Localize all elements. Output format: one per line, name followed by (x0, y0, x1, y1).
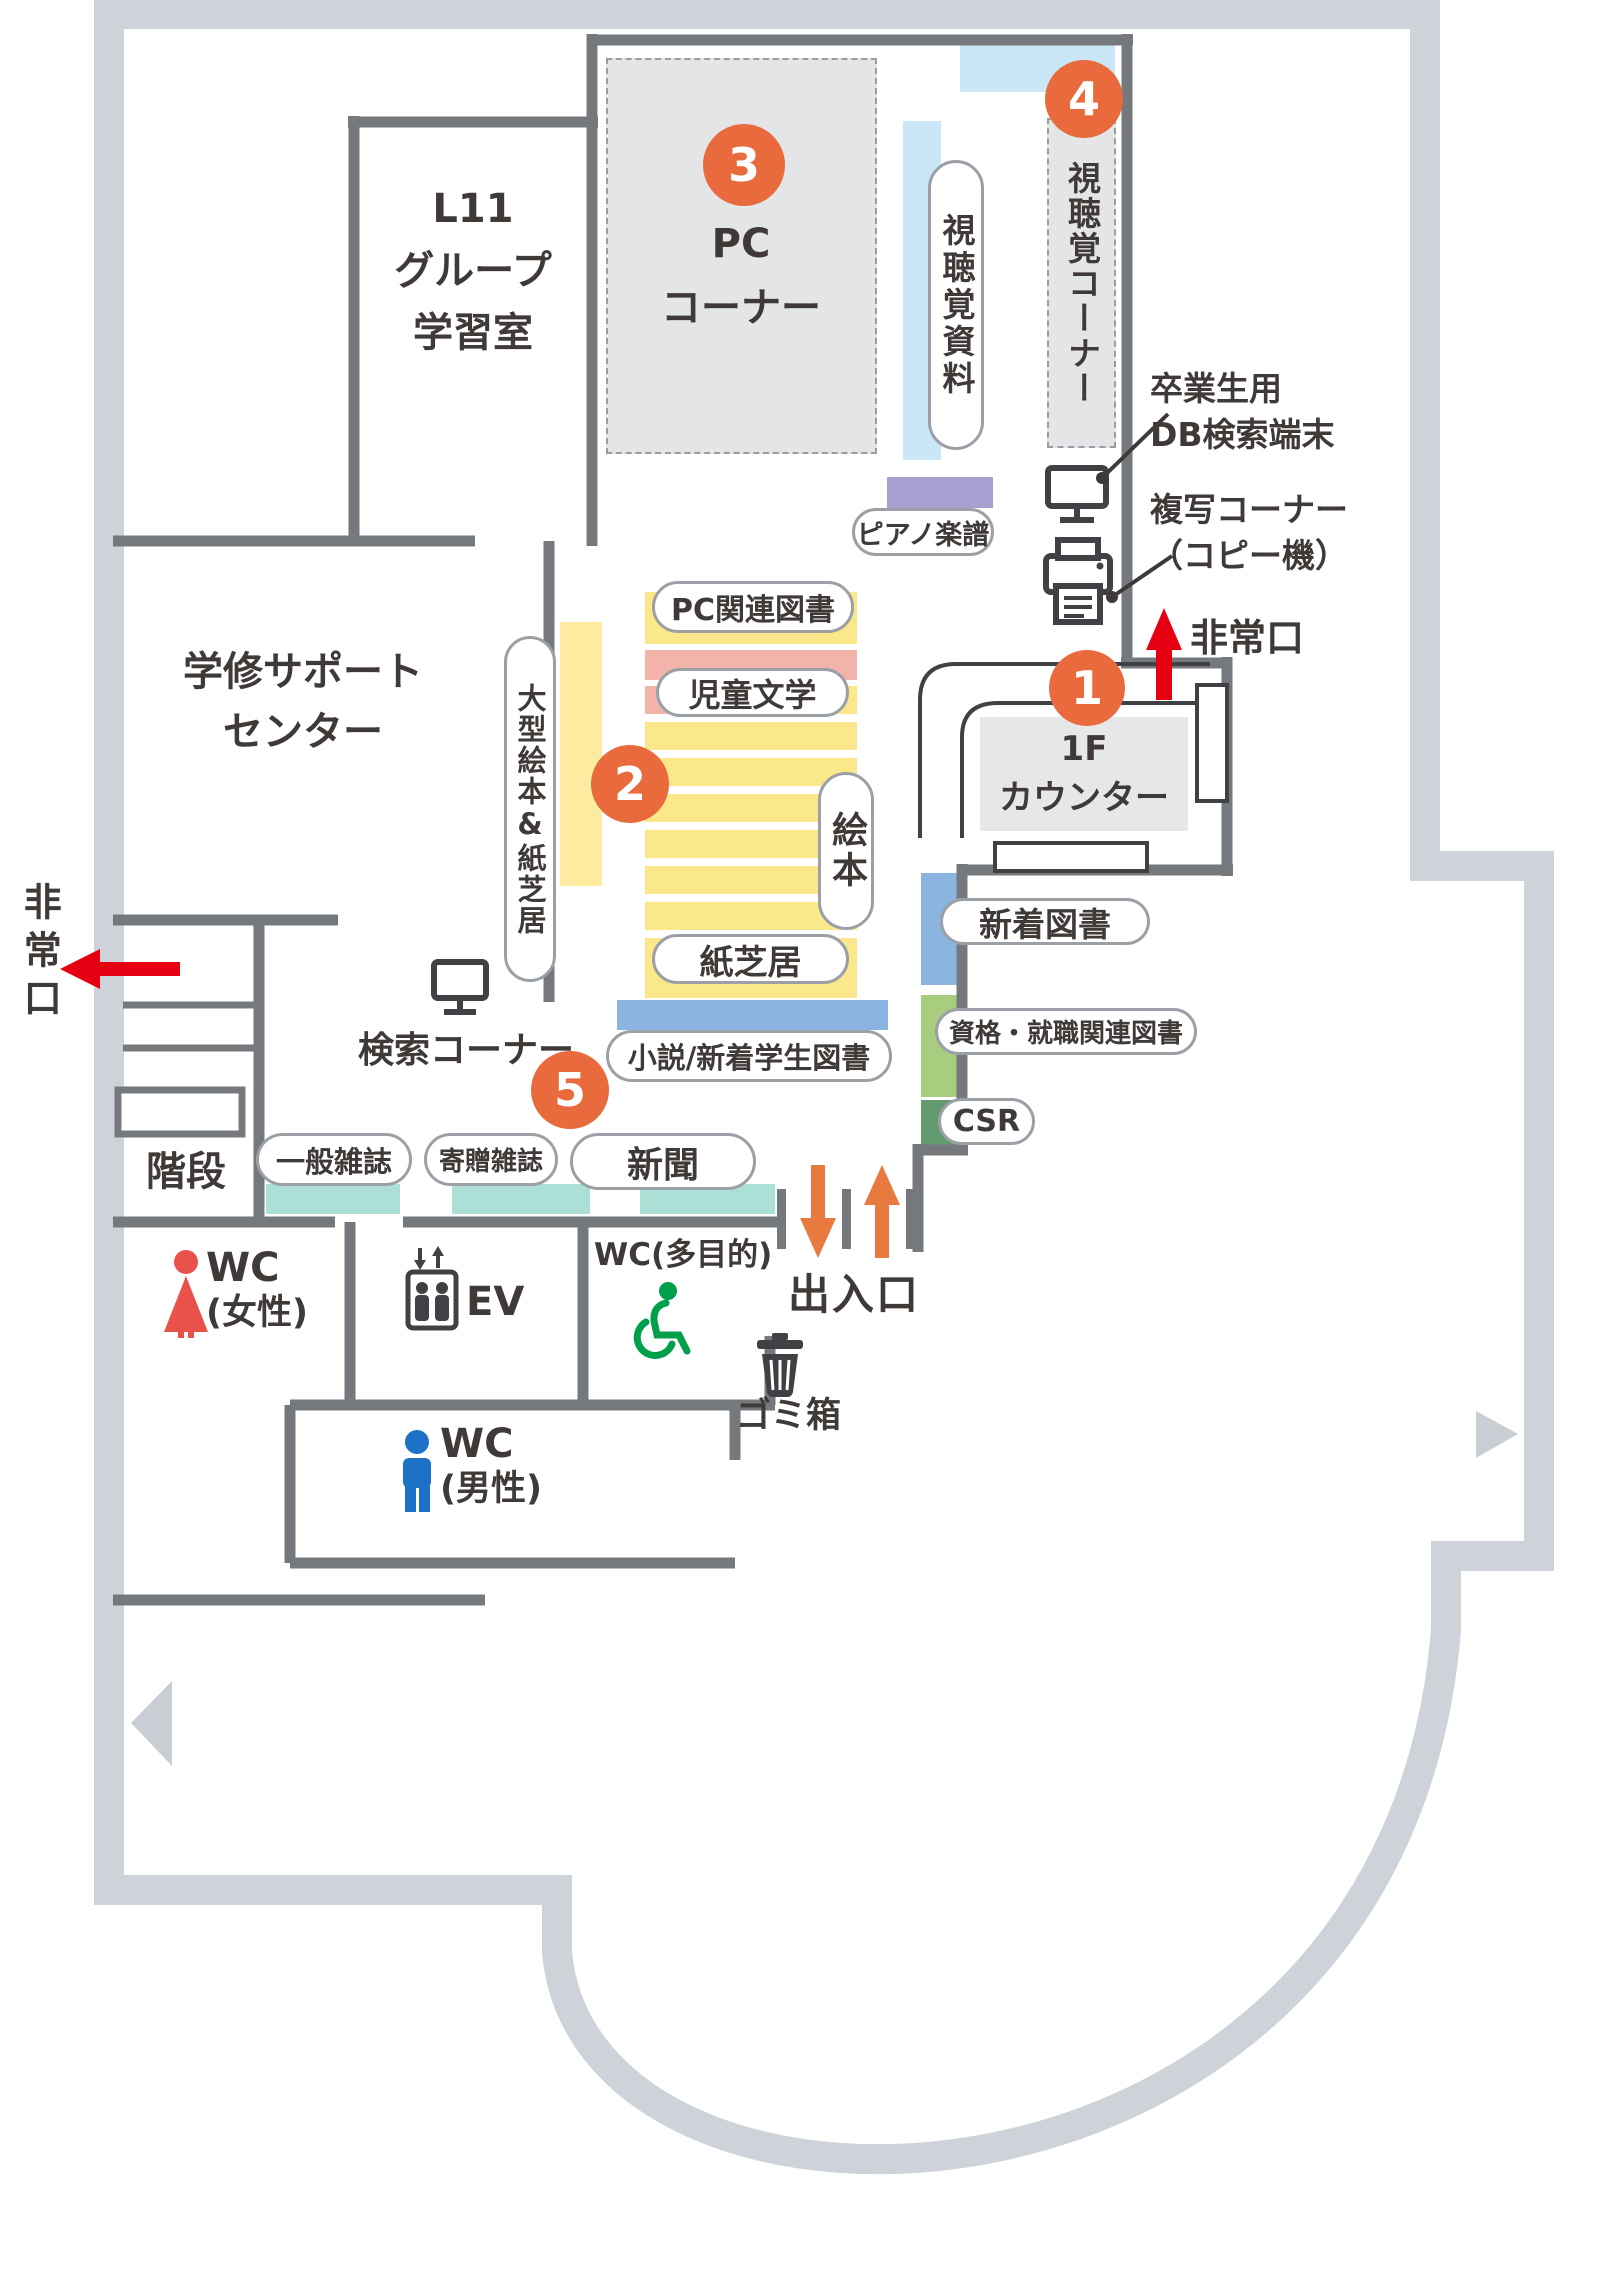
label-db-terminal: 卒業生用 DB検索端末 (1150, 366, 1335, 458)
room-label-stairs: 階段 (146, 1144, 226, 1200)
label-wc-multi: WC(多目的) (594, 1234, 772, 1277)
pill-large-picture-books: 大型絵本&紙芝居 (504, 636, 556, 982)
label-copy-corner: 複写コーナー （コピー機） (1150, 487, 1348, 579)
pill-picture-books: 絵本 (818, 772, 874, 930)
room-label-pc-corner: PC コーナー (616, 212, 866, 340)
elevator-icon (408, 1246, 456, 1328)
label-emergency-exit-left: 非常口 (12, 882, 65, 1026)
db-terminal-line1: 卒業生用 (1150, 366, 1335, 412)
wc-male-line1: WC (440, 1420, 542, 1468)
entrance-arrow-down-icon (800, 1165, 836, 1258)
pill-donated-magazines: 寄贈雑誌 (424, 1133, 558, 1186)
pill-kamishibai: 紙芝居 (652, 934, 849, 984)
support-center-line2: センター (148, 702, 458, 762)
marker-3-pc: 3 (703, 124, 785, 206)
label-elevator: EV (466, 1274, 524, 1330)
pill-magazines: 一般雑誌 (256, 1133, 412, 1186)
db-terminal-line2: DB検索端末 (1150, 412, 1335, 458)
pc-corner-line2: コーナー (616, 276, 866, 340)
label-wc-male: WC (男性) (440, 1420, 542, 1510)
pill-novels-new-students: 小説/新着学生図書 (606, 1030, 892, 1082)
pill-csr: CSR (938, 1098, 1035, 1145)
pill-pc-books: PC関連図書 (652, 581, 854, 633)
counter-desk (995, 843, 1147, 871)
counter-label-line1: 1F (1061, 725, 1108, 774)
direction-triangle-left-icon (131, 1681, 172, 1766)
wc-female-line2: (女性) (206, 1292, 308, 1334)
pill-av-materials: 視聴覚資料 (928, 160, 984, 450)
label-wc-female: WC (女性) (206, 1244, 308, 1334)
magazine-shelf (266, 1184, 400, 1214)
pill-new-books: 新着図書 (940, 898, 1150, 945)
label-entrance: 出入口 (788, 1266, 920, 1325)
marker-1-counter: 1 (1049, 650, 1125, 726)
stairs-treads (118, 1005, 256, 1134)
wheelchair-icon (637, 1282, 687, 1355)
marker-5-newspaper: 5 (531, 1051, 609, 1129)
copy-corner-line1: 複写コーナー (1150, 487, 1348, 533)
support-center-line1: 学修サポート (148, 642, 458, 702)
wc-male-line2: (男性) (440, 1468, 542, 1510)
counter-area: 1F カウンター (980, 717, 1188, 831)
av-corner-label: 視聴覚コーナー (1058, 161, 1106, 406)
trash-icon (757, 1333, 803, 1397)
marker-4-av: 4 (1045, 60, 1123, 138)
male-icon (403, 1430, 431, 1512)
pill-career-books: 資格・就職関連図書 (935, 1008, 1197, 1055)
pill-children-lit: 児童文学 (656, 668, 849, 717)
counter-desk (1197, 685, 1227, 801)
pill-piano-scores: ピアノ楽譜 (852, 508, 994, 556)
l11-line2: グループ (368, 240, 578, 302)
donated-magazine-shelf (452, 1184, 590, 1214)
av-corner-area: 視聴覚コーナー (1047, 118, 1116, 448)
piano-score-shelf (887, 477, 993, 508)
counter-label-line2: カウンター (999, 774, 1169, 823)
l11-line3: 学習室 (368, 302, 578, 364)
search-monitor-icon (434, 962, 486, 1012)
wc-female-line1: WC (206, 1244, 308, 1292)
room-label-support-center: 学修サポート センター (148, 642, 458, 762)
pill-newspapers: 新聞 (570, 1133, 756, 1190)
entrance-arrow-up-icon (864, 1165, 900, 1258)
room-label-l11: L11 グループ 学習室 (368, 178, 578, 364)
direction-triangle-right-icon (1476, 1411, 1518, 1458)
female-icon (164, 1250, 208, 1338)
pc-corner-line1: PC (616, 212, 866, 276)
marker-2-picture-books: 2 (591, 745, 669, 823)
shelf-row (645, 722, 857, 750)
label-trash: ゴミ箱 (736, 1392, 841, 1441)
large-picture-book-shelf (560, 622, 602, 886)
emergency-arrow-up-icon (1146, 608, 1182, 700)
library-floor-map-1f: { "palette": { "outer-wall": "#ced3d9", … (0, 0, 1600, 2277)
l11-line1: L11 (368, 178, 578, 240)
copy-corner-line2: （コピー機） (1150, 533, 1348, 579)
novel-shelf (617, 1000, 888, 1030)
label-emergency-exit-top: 非常口 (1190, 612, 1304, 665)
printer-icon (1046, 540, 1110, 622)
